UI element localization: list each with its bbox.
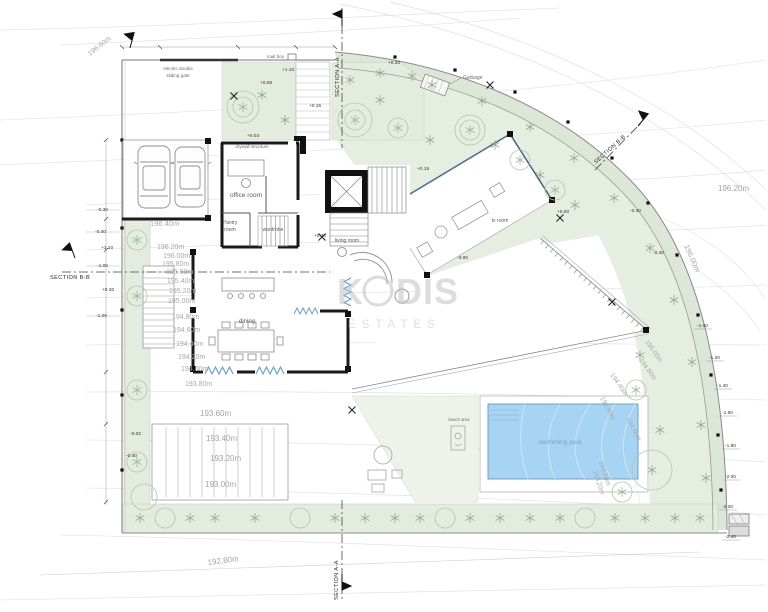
level-mark: -1.80 (725, 443, 736, 449)
gate-label: electric double (163, 66, 193, 71)
contour-label: 193.80m (185, 381, 212, 388)
level-mark: +1.10 (282, 67, 294, 73)
room-label-pool: swimming pool (539, 439, 583, 446)
room-label-pantry: room (224, 227, 235, 233)
level-mark: +1.10 (101, 245, 113, 251)
dining-hall (190, 249, 351, 374)
section-label-left: SECTION B-B (50, 275, 90, 281)
contour-label: 194.40m (608, 372, 628, 397)
level-mark: -2.40 (725, 534, 736, 540)
stair-core (320, 165, 410, 250)
contour-label: 195.40m (167, 278, 194, 285)
level-mark: +0.15 (309, 103, 321, 109)
gate-label: sliding gate (166, 73, 190, 78)
level-mark: +0.03 (247, 133, 259, 139)
room-label-wardrobe: wardrobe (263, 227, 284, 233)
level-mark: -1.40 (717, 383, 728, 389)
carport (122, 138, 211, 221)
car (134, 146, 174, 208)
contour-label: 194.00m (181, 366, 208, 373)
section-label-bottom: SECTION A-A (334, 560, 340, 600)
contour-label: 196.00m (163, 253, 190, 260)
level-mark: -0.03 (130, 431, 141, 437)
room-label-dining: dining (239, 319, 255, 325)
level-mark: -3.00 (457, 255, 468, 261)
section-flag (631, 108, 648, 126)
contour-label: 194.20m (178, 354, 205, 361)
section-flag (342, 574, 351, 590)
contour-label: 195.00m (168, 298, 195, 305)
level-mark: +0.05 (260, 80, 272, 86)
level-mark: -0.40 (653, 250, 664, 256)
level-mark: -0.40 (630, 208, 641, 214)
level-mark: -2.20 (722, 504, 733, 510)
level-mark: +0.20 (388, 60, 400, 66)
watermark-text-k: K (337, 271, 364, 312)
level-mark: +0.00 (557, 209, 569, 215)
room-label-pantry: Pantry (223, 220, 238, 226)
contour-label: 196.40m (150, 219, 179, 228)
contour-label: 194.40m (176, 341, 203, 348)
contour-label: 194.80m (172, 314, 199, 321)
drywall-label: drywall structure (235, 144, 269, 149)
level-mark: -1.00 (96, 313, 107, 319)
level-mark: +0.20 (314, 233, 326, 239)
garden-left-of-path (222, 62, 296, 140)
level-mark: +0.15 (417, 166, 429, 172)
contour-label: 195.20m (169, 288, 196, 295)
contour-label: 196.20m (718, 184, 749, 193)
section-flag (61, 243, 75, 261)
site-plan-drawing: SECTION A-A SECTION A-A SECTION B-B SECT… (0, 0, 768, 612)
contour-label: 193.60m (200, 409, 231, 418)
north-flag (121, 30, 134, 48)
level-mark: -1.00 (697, 323, 708, 329)
car (171, 147, 211, 207)
watermark-text-dis: DIS (396, 271, 459, 312)
contour-label: 195.80m (162, 261, 189, 268)
mailbox-label: mail box (267, 54, 285, 59)
level-mark: -1.00 (97, 263, 108, 269)
room-label-living: living room (335, 238, 359, 244)
contour-label: 196.60m (87, 35, 113, 57)
section-label-top: SECTION A-A (335, 57, 341, 97)
mailbox-symbol (288, 54, 296, 60)
watermark-subtext: ESTATES (348, 319, 441, 331)
contour-label: 195.60m (166, 269, 193, 276)
room-label-tv: tv room (492, 218, 509, 224)
level-mark: -0.30 (97, 207, 108, 213)
level-mark: -1.20 (709, 355, 720, 361)
terrace (352, 236, 651, 393)
contour-label: 193.00m (205, 480, 236, 489)
level-mark: +0.30 (102, 287, 114, 293)
level-mark: -2.00 (725, 474, 736, 480)
watermark-o-logo (364, 277, 392, 305)
contour-label: 194.60m (173, 327, 200, 334)
contour-label: 196.20m (157, 244, 184, 251)
contour-label: 192.80m (207, 554, 239, 567)
contour-label: 193.40m (206, 434, 237, 443)
room-label-office: office room (230, 192, 262, 199)
garbage-label: Garbage (463, 75, 483, 81)
contour-label: 193.20m (210, 454, 241, 463)
level-mark: -0.40 (126, 453, 137, 459)
level-mark: -0.40 (95, 229, 106, 235)
level-mark: -1.60 (722, 410, 733, 416)
pool-side-garden (352, 396, 478, 502)
beach-label: beach area (449, 417, 471, 422)
utility-box (729, 514, 749, 536)
